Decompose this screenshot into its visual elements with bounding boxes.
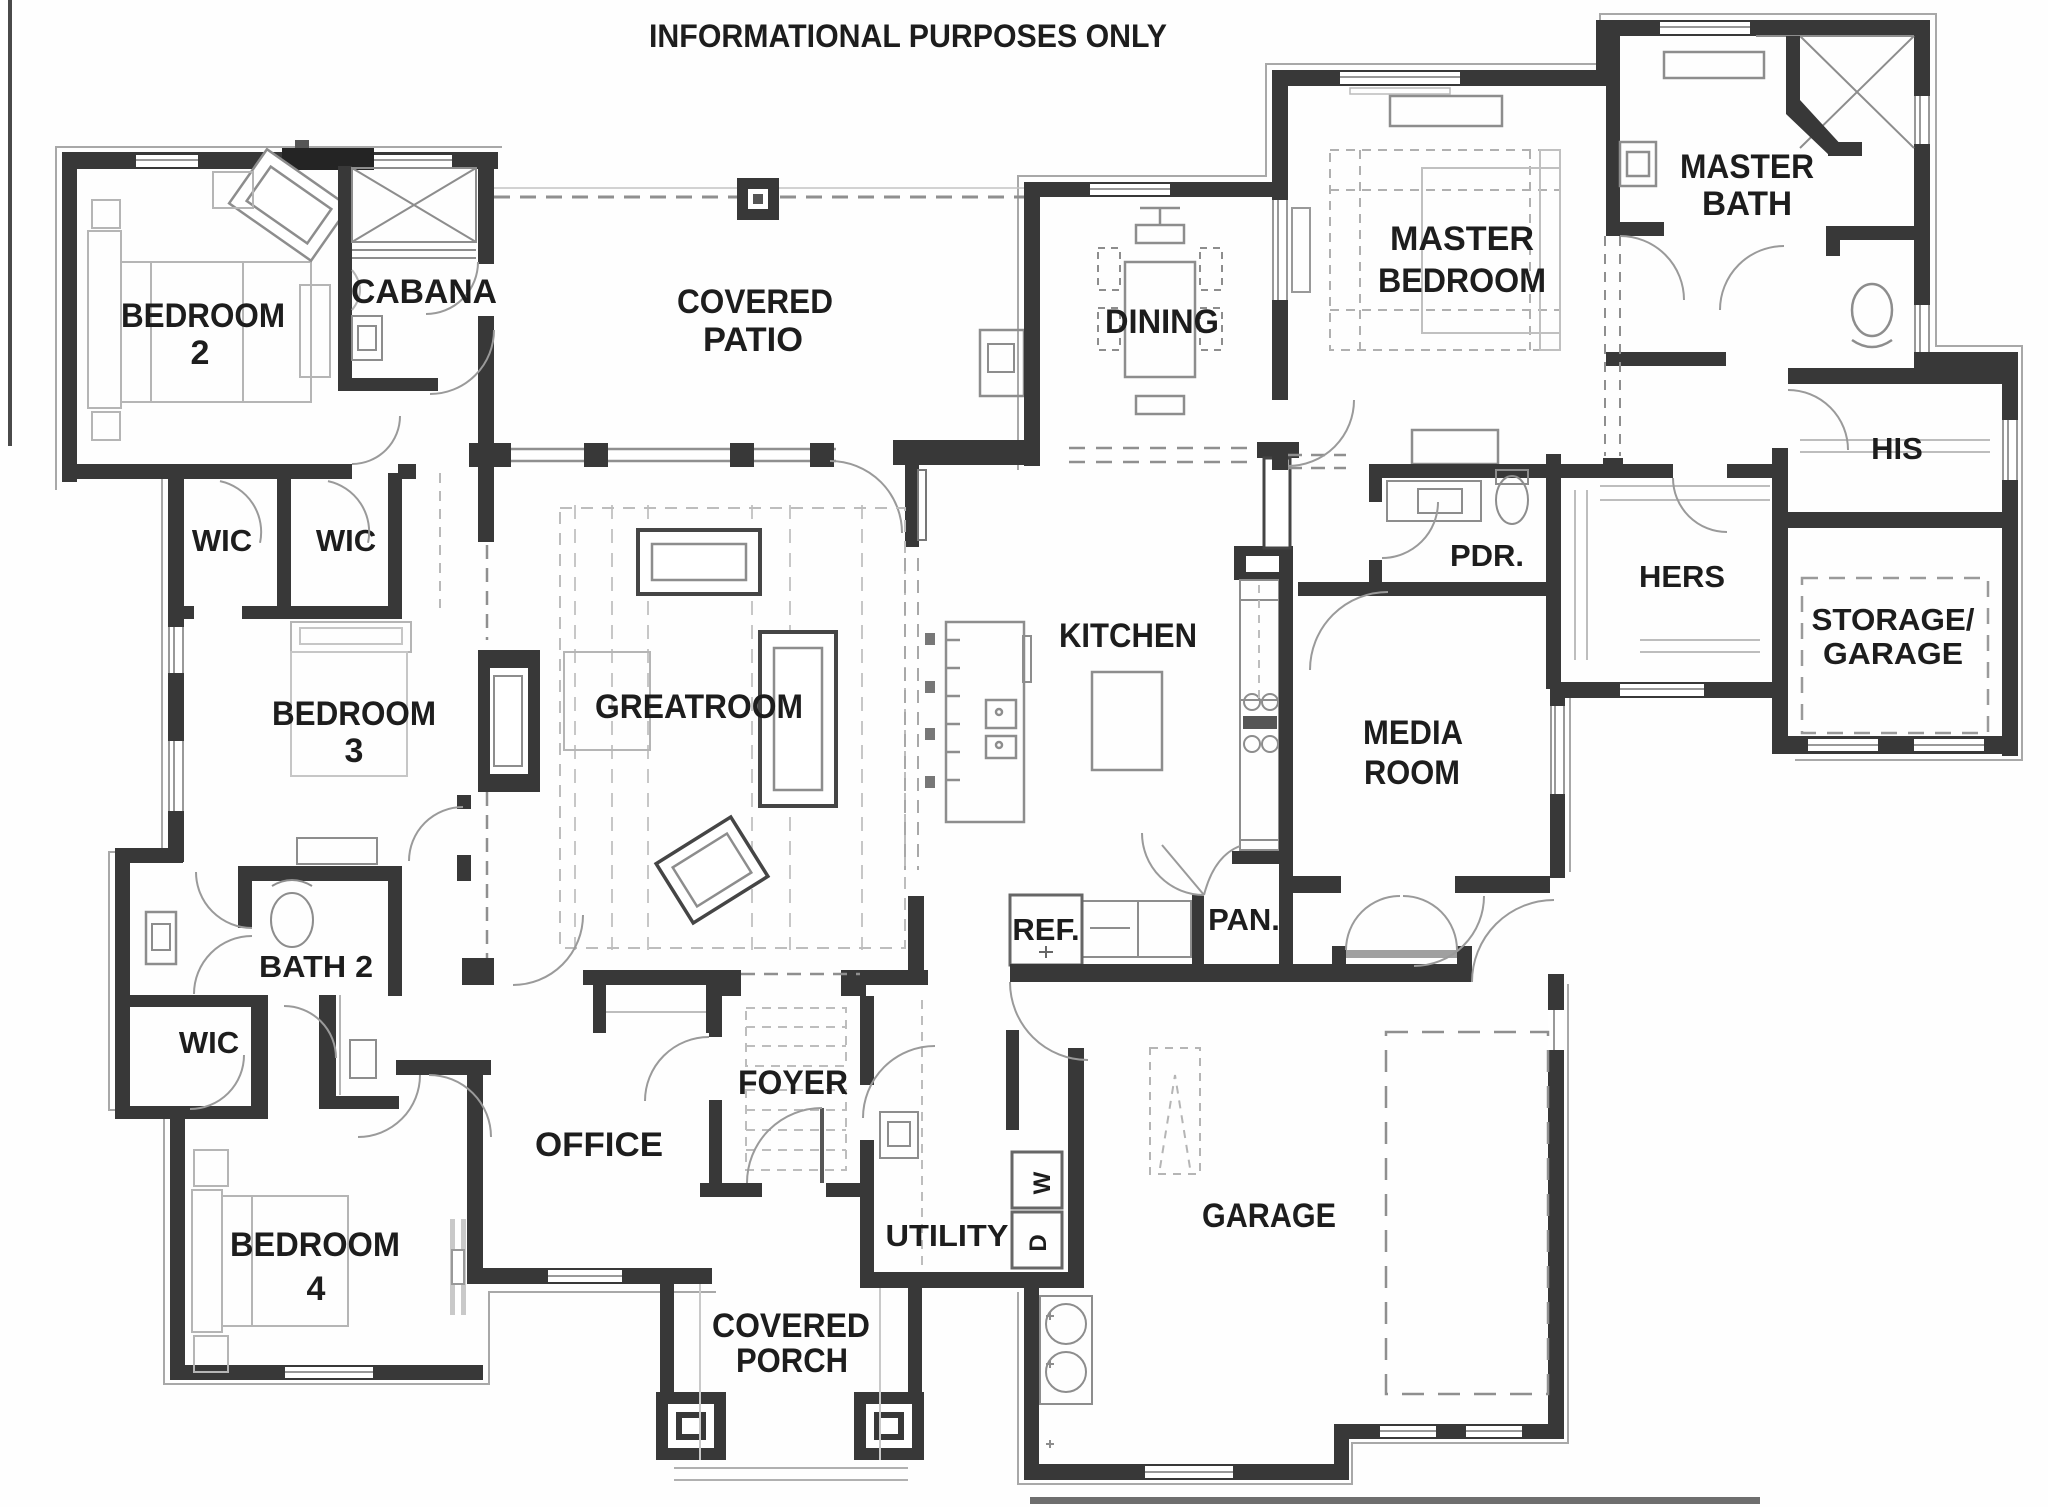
svg-text:WIC: WIC: [179, 1025, 239, 1060]
svg-text:PAN.: PAN.: [1208, 902, 1280, 937]
svg-text:INFORMATIONAL PURPOSES ONLY: INFORMATIONAL PURPOSES ONLY: [649, 18, 1167, 54]
svg-text:DINING: DINING: [1105, 303, 1219, 341]
svg-text:CABANA: CABANA: [351, 273, 497, 311]
svg-text:REF.: REF.: [1012, 912, 1079, 947]
svg-text:COVERED: COVERED: [677, 283, 833, 321]
svg-text:PATIO: PATIO: [703, 321, 803, 359]
svg-text:MASTER: MASTER: [1680, 148, 1814, 186]
svg-text:BATH 2: BATH 2: [259, 949, 373, 984]
svg-text:GARAGE: GARAGE: [1823, 636, 1963, 671]
svg-text:COVERED: COVERED: [712, 1307, 870, 1345]
svg-text:BEDROOM: BEDROOM: [1378, 262, 1546, 300]
svg-text:BEDROOM: BEDROOM: [121, 297, 285, 335]
svg-text:KITCHEN: KITCHEN: [1059, 617, 1197, 655]
svg-text:BATH: BATH: [1702, 185, 1792, 223]
svg-text:GARAGE: GARAGE: [1202, 1197, 1336, 1235]
svg-text:ROOM: ROOM: [1364, 754, 1460, 792]
svg-text:OFFICE: OFFICE: [535, 1126, 663, 1164]
svg-text:WIC: WIC: [192, 523, 252, 558]
svg-text:PDR.: PDR.: [1450, 538, 1524, 573]
svg-text:FOYER: FOYER: [738, 1064, 848, 1102]
svg-text:HERS: HERS: [1639, 559, 1725, 594]
svg-text:BEDROOM: BEDROOM: [230, 1226, 400, 1264]
svg-text:STORAGE/: STORAGE/: [1812, 602, 1975, 637]
svg-text:W: W: [1029, 1171, 1056, 1194]
svg-text:HIS: HIS: [1871, 431, 1923, 466]
svg-text:BEDROOM: BEDROOM: [272, 695, 436, 733]
svg-text:3: 3: [345, 732, 364, 770]
svg-text:MASTER: MASTER: [1390, 220, 1534, 258]
svg-text:GREATROOM: GREATROOM: [595, 688, 803, 726]
svg-text:UTILITY: UTILITY: [886, 1218, 1009, 1253]
svg-text:D: D: [1025, 1234, 1052, 1251]
svg-text:4: 4: [307, 1270, 326, 1308]
svg-text:MEDIA: MEDIA: [1363, 714, 1463, 752]
svg-text:WIC: WIC: [316, 523, 376, 558]
svg-text:PORCH: PORCH: [736, 1342, 848, 1380]
svg-text:2: 2: [191, 334, 210, 372]
